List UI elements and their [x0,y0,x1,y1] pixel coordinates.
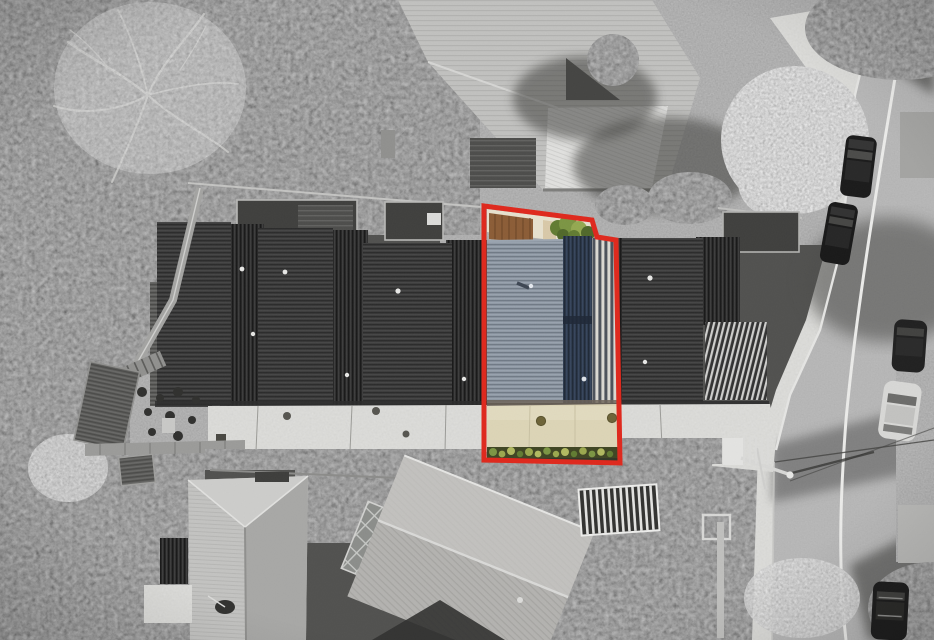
aerial-photo-canvas [0,0,934,640]
vignette [0,0,934,640]
aerial-photo [0,0,934,640]
